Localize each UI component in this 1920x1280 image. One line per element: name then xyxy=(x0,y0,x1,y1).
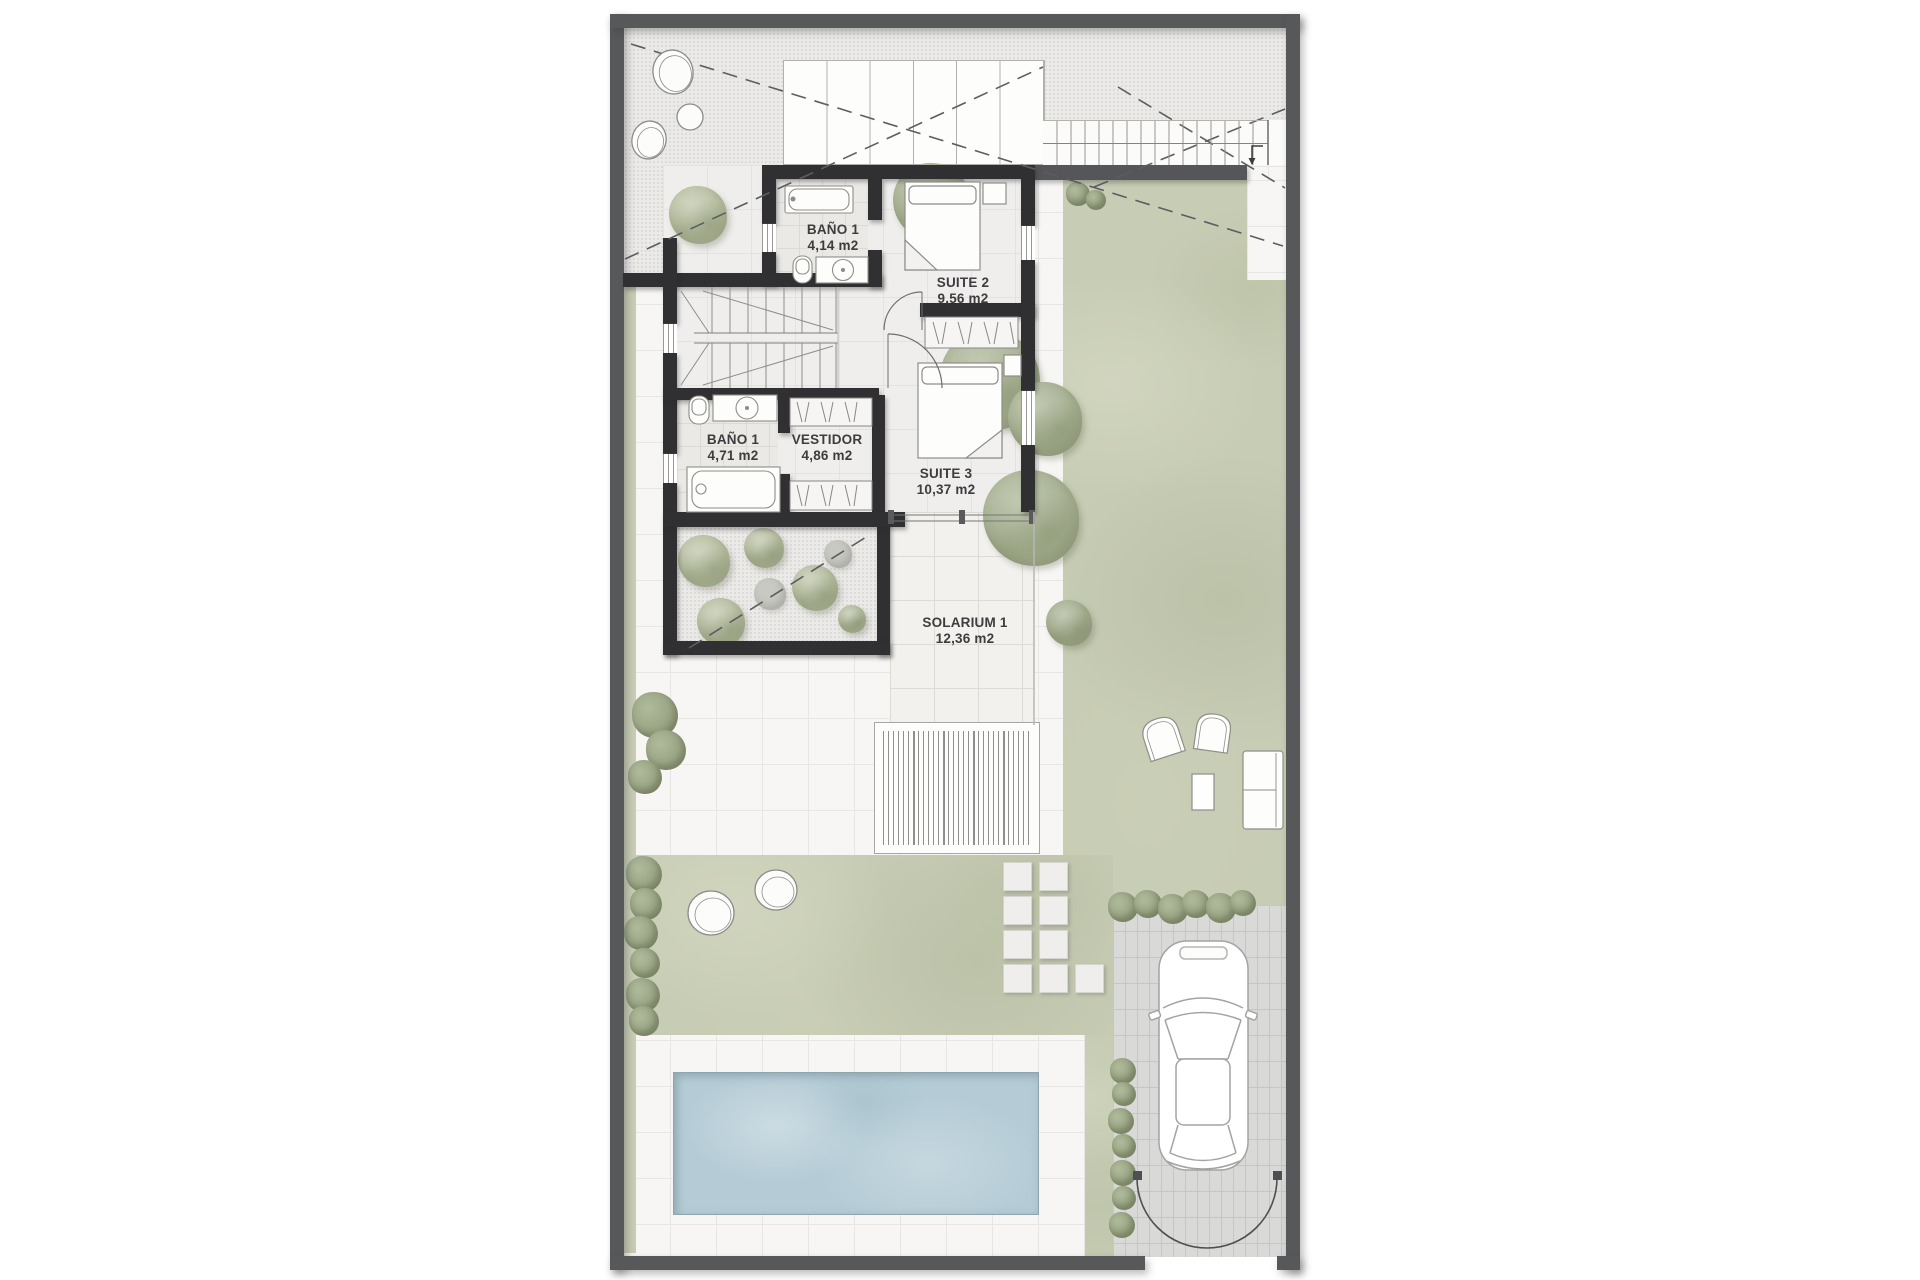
bush xyxy=(630,948,660,978)
wall-segment xyxy=(663,238,677,323)
hedge-driveway-left xyxy=(1109,1212,1135,1238)
bush xyxy=(628,760,662,794)
tree xyxy=(1046,600,1092,646)
swimming-pool xyxy=(673,1072,1039,1215)
hedge-driveway-left xyxy=(1110,1058,1136,1084)
room-name: VESTIDOR xyxy=(752,432,902,448)
wall-segment xyxy=(663,388,879,400)
courtyard-shrub xyxy=(824,540,852,568)
wall-segment xyxy=(762,179,776,223)
boundary-wall-left xyxy=(610,14,624,1270)
tree xyxy=(1008,382,1082,456)
wall-segment xyxy=(663,512,905,527)
room-name: SUITE 2 xyxy=(888,275,1038,291)
garden-right xyxy=(1063,180,1286,905)
paving-patch-topright xyxy=(1247,180,1286,280)
pergola-slats xyxy=(783,60,1045,165)
courtyard-shrub xyxy=(754,578,786,610)
louver-divider xyxy=(1003,731,1005,845)
window xyxy=(663,323,677,355)
stepping-stone xyxy=(1039,862,1068,891)
stepping-stone xyxy=(1039,930,1068,959)
stepping-stone xyxy=(1003,896,1032,925)
hedge-driveway-top xyxy=(1230,890,1256,916)
louver-deck xyxy=(874,722,1040,854)
floor-plan-canvas: BAÑO 1 4,14 m2 SUITE 2 9,56 m2 BAÑO 1 4,… xyxy=(0,0,1920,1280)
hedge-driveway-left xyxy=(1108,1108,1134,1134)
louver-divider xyxy=(943,731,945,845)
room-area: 12,36 m2 xyxy=(890,631,1040,647)
courtyard-tree xyxy=(678,535,730,587)
hedge-driveway-left xyxy=(1112,1186,1136,1210)
exterior-staircase xyxy=(1043,120,1286,165)
wall-segment xyxy=(778,474,790,512)
hedge-driveway-left xyxy=(1112,1134,1136,1158)
wall-segment xyxy=(778,395,790,433)
garden-wall xyxy=(1030,165,1247,180)
wall-segment xyxy=(623,273,882,287)
wall-segment xyxy=(868,250,882,287)
courtyard-tree xyxy=(792,565,838,611)
stepping-stone xyxy=(1039,964,1068,993)
stepping-stone xyxy=(1003,930,1032,959)
wall-segment xyxy=(1021,445,1035,512)
louver-divider xyxy=(973,731,975,845)
bush xyxy=(1086,190,1106,210)
stepping-stone xyxy=(1075,964,1104,993)
courtyard-tree xyxy=(697,598,745,646)
wall-segment xyxy=(1021,179,1035,225)
bush xyxy=(626,856,662,892)
room-name: SOLARIUM 1 xyxy=(890,615,1040,631)
boundary-wall-bottom xyxy=(610,1256,1145,1270)
stepping-stone xyxy=(1039,896,1068,925)
wall-segment xyxy=(663,641,890,655)
stepping-stone xyxy=(1003,862,1032,891)
room-name: SUITE 3 xyxy=(871,466,1021,482)
louver-slats xyxy=(883,731,1031,845)
room-area: 4,14 m2 xyxy=(758,238,908,254)
boundary-wall-top xyxy=(610,14,1300,28)
room-label-vestidor: VESTIDOR 4,86 m2 xyxy=(752,432,902,463)
wall-segment xyxy=(877,512,890,655)
room-label-bano1-upper: BAÑO 1 4,14 m2 xyxy=(758,222,908,253)
bush xyxy=(630,888,662,920)
hedge-driveway-left xyxy=(1110,1160,1136,1186)
room-area: 9,56 m2 xyxy=(888,291,1038,307)
room-area: 4,86 m2 xyxy=(752,448,902,464)
driveway xyxy=(1113,905,1287,1257)
window xyxy=(1021,225,1035,262)
wall-segment xyxy=(762,165,1035,179)
stepping-stone xyxy=(1003,964,1032,993)
room-area: 10,37 m2 xyxy=(871,482,1021,498)
wall-segment xyxy=(868,179,882,220)
bush xyxy=(629,1006,659,1036)
louver-divider xyxy=(913,731,915,845)
hedge-driveway-left xyxy=(1112,1082,1136,1106)
room-label-suite2: SUITE 2 9,56 m2 xyxy=(888,275,1038,306)
window xyxy=(1021,390,1035,447)
wall-segment xyxy=(663,483,677,655)
courtyard-tree xyxy=(744,528,784,568)
tree xyxy=(669,186,727,244)
room-name: BAÑO 1 xyxy=(758,222,908,238)
boundary-wall-bottom-stub xyxy=(1277,1256,1300,1270)
boundary-wall-right xyxy=(1286,14,1300,1270)
room-label-suite3: SUITE 3 10,37 m2 xyxy=(871,466,1021,497)
room-label-solarium: SOLARIUM 1 12,36 m2 xyxy=(890,615,1040,646)
bush xyxy=(624,916,658,950)
courtyard-tree xyxy=(838,605,866,633)
